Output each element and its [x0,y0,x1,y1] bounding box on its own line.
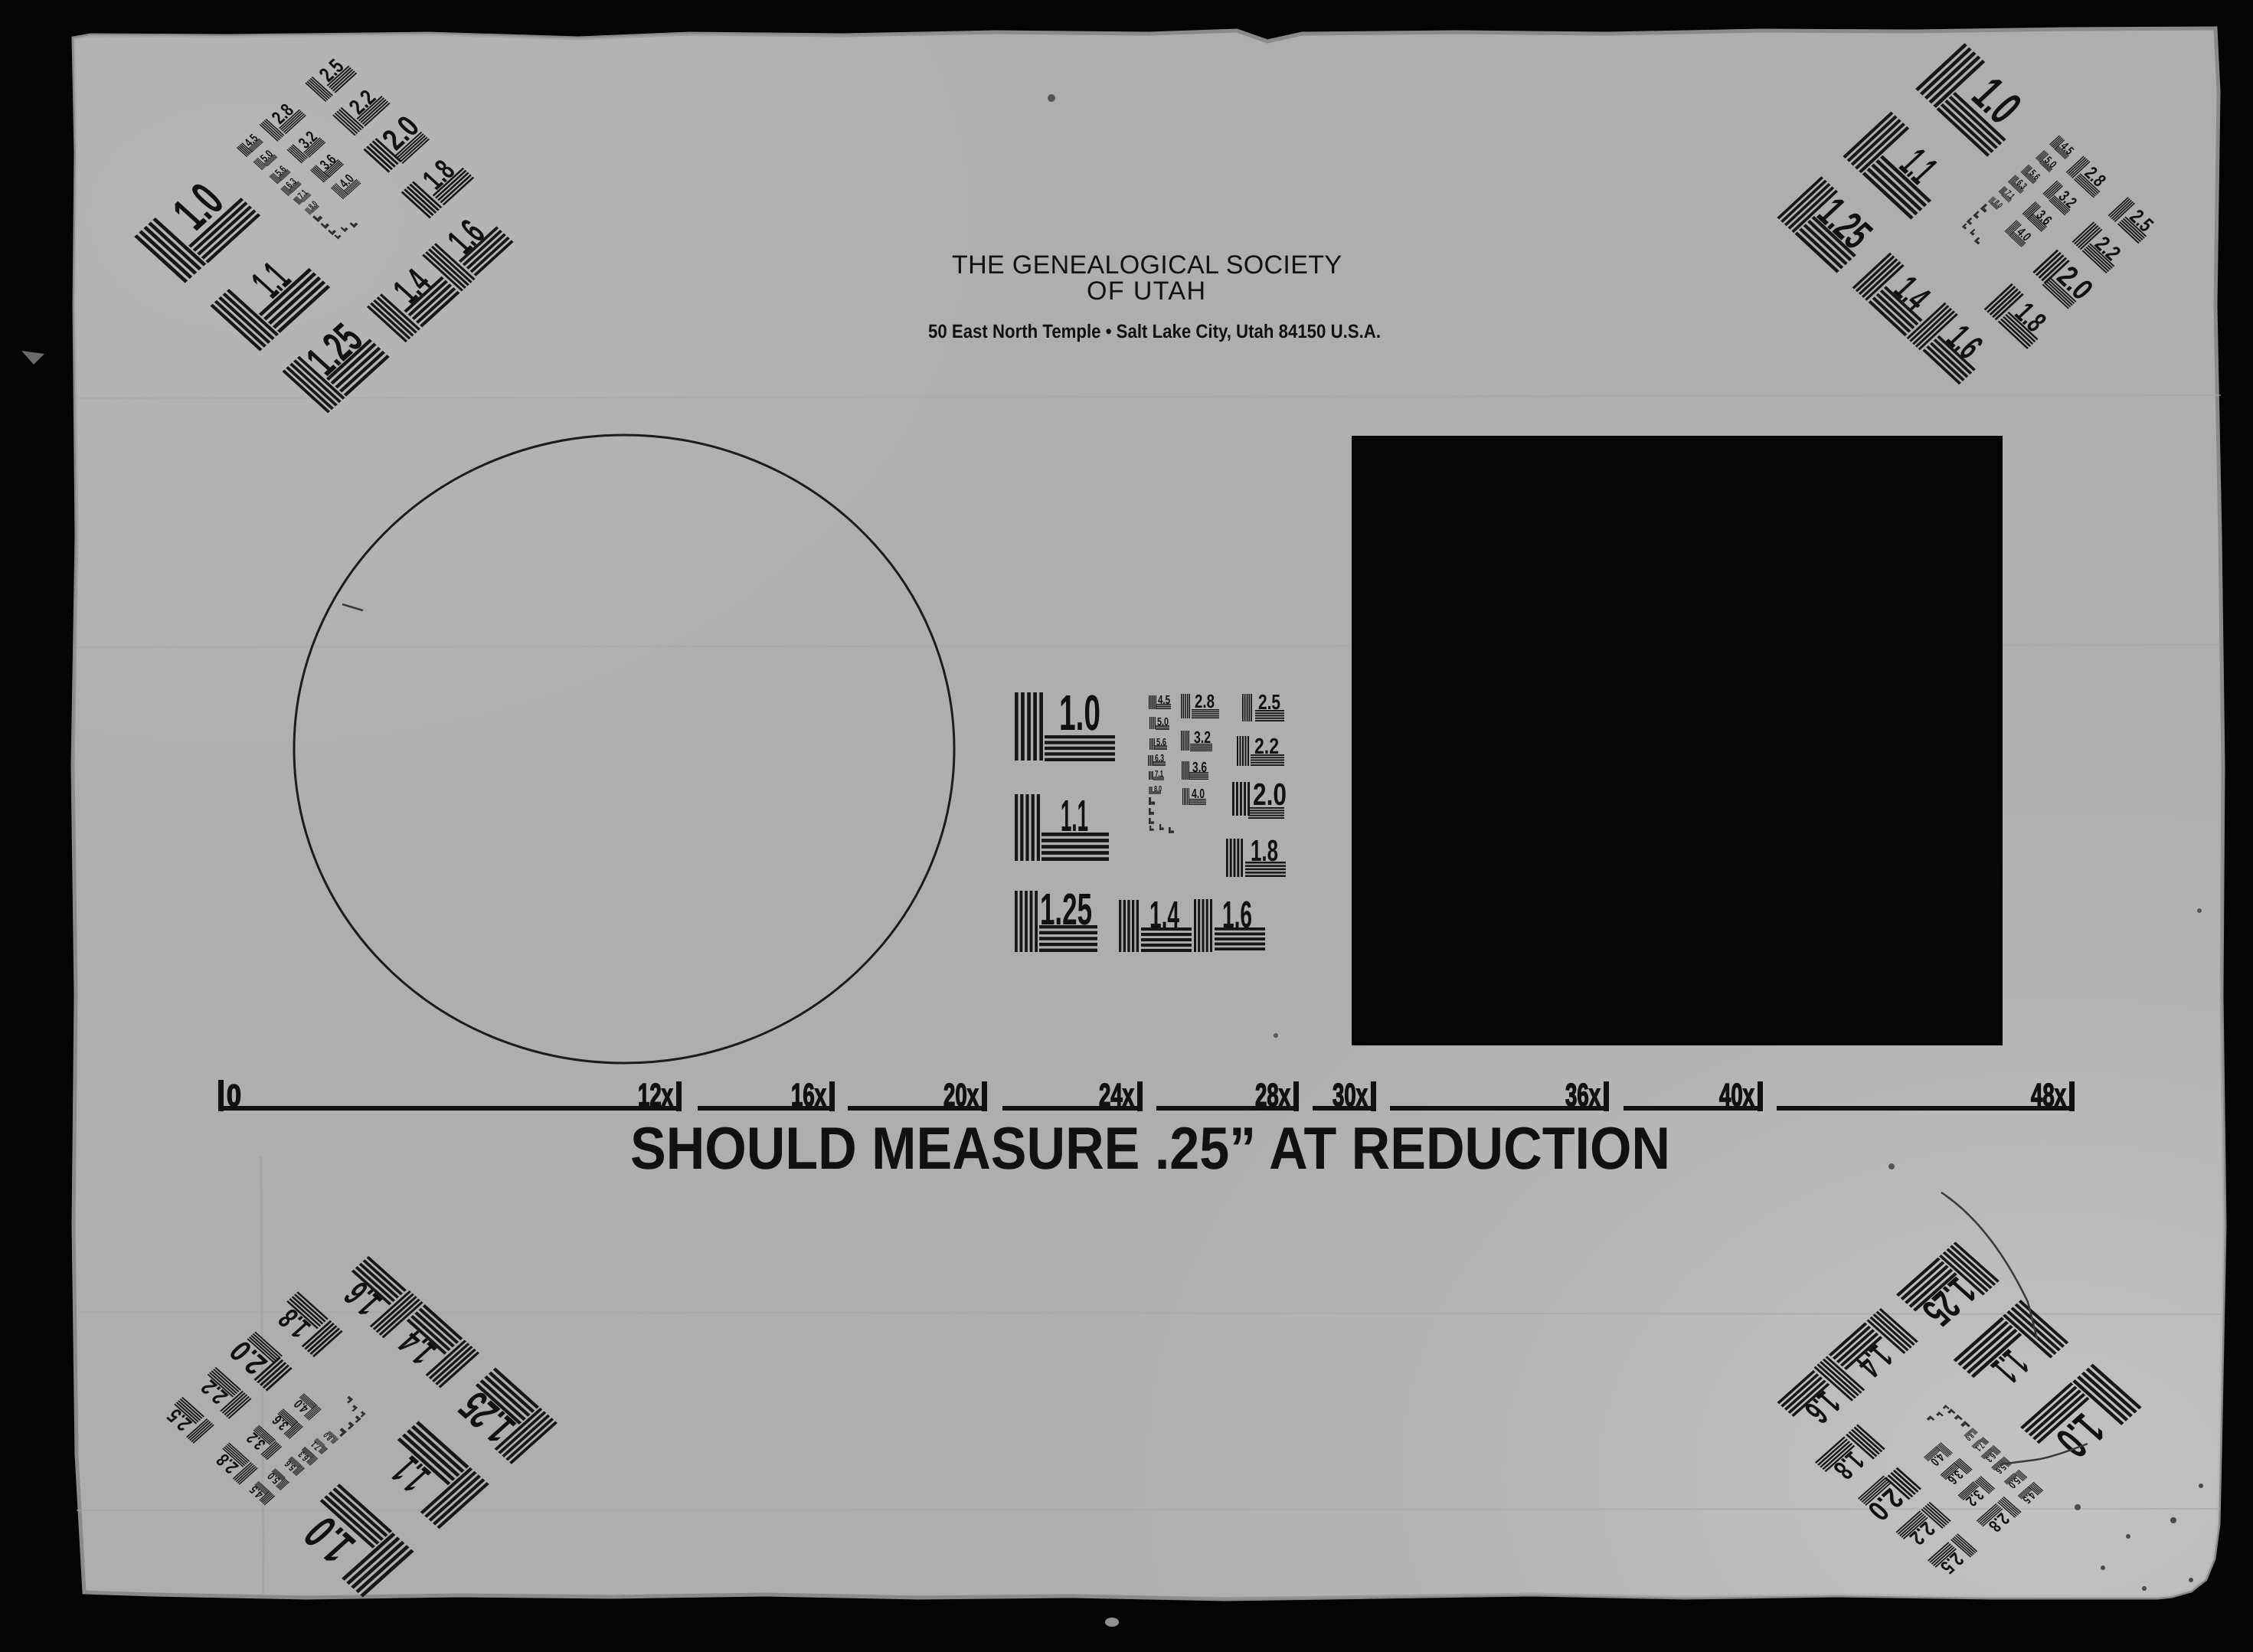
svg-text:28x: 28x [1255,1077,1290,1113]
svg-text:0: 0 [227,1079,241,1113]
svg-text:12x: 12x [638,1077,673,1113]
svg-text:50 East North Temple • Salt La: 50 East North Temple • Salt Lake City, U… [928,321,1381,342]
svg-text:36x: 36x [1565,1077,1601,1113]
svg-text:40x: 40x [1719,1077,1754,1113]
svg-text:OF UTAH: OF UTAH [1087,276,1205,306]
svg-text:SHOULD MEASURE .25” AT REDUCTI: SHOULD MEASURE .25” AT REDUCTION [630,1114,1670,1182]
svg-text:48x: 48x [2031,1077,2066,1113]
svg-text:20x: 20x [943,1077,979,1113]
svg-text:16x: 16x [791,1077,826,1113]
svg-text:24x: 24x [1099,1077,1134,1113]
svg-text:THE GENEALOGICAL SOCIETY: THE GENEALOGICAL SOCIETY [952,250,1342,280]
svg-text:30x: 30x [1333,1077,1368,1113]
